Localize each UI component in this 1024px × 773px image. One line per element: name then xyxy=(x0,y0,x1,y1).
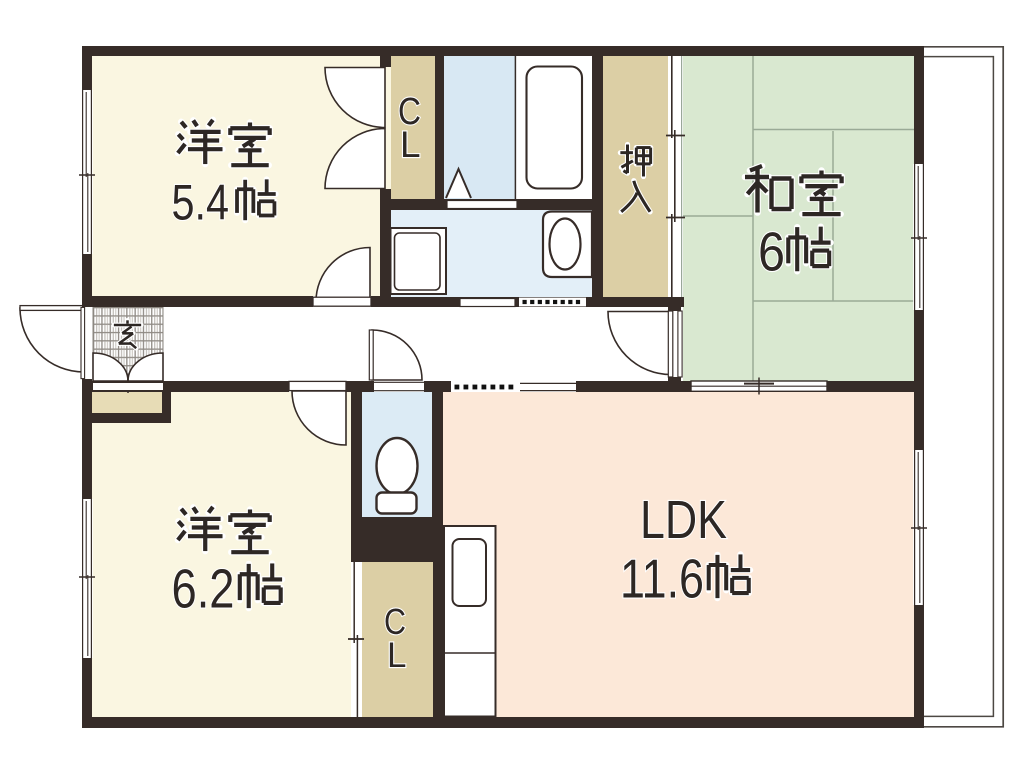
svg-text:L: L xyxy=(400,124,421,165)
svg-text:11.6: 11.6 xyxy=(620,549,704,610)
svg-text:LDK: LDK xyxy=(640,490,727,550)
svg-text:5.4: 5.4 xyxy=(172,174,230,231)
svg-text:L: L xyxy=(387,636,406,675)
svg-text:6.2: 6.2 xyxy=(172,558,235,620)
svg-text:6: 6 xyxy=(758,221,785,283)
